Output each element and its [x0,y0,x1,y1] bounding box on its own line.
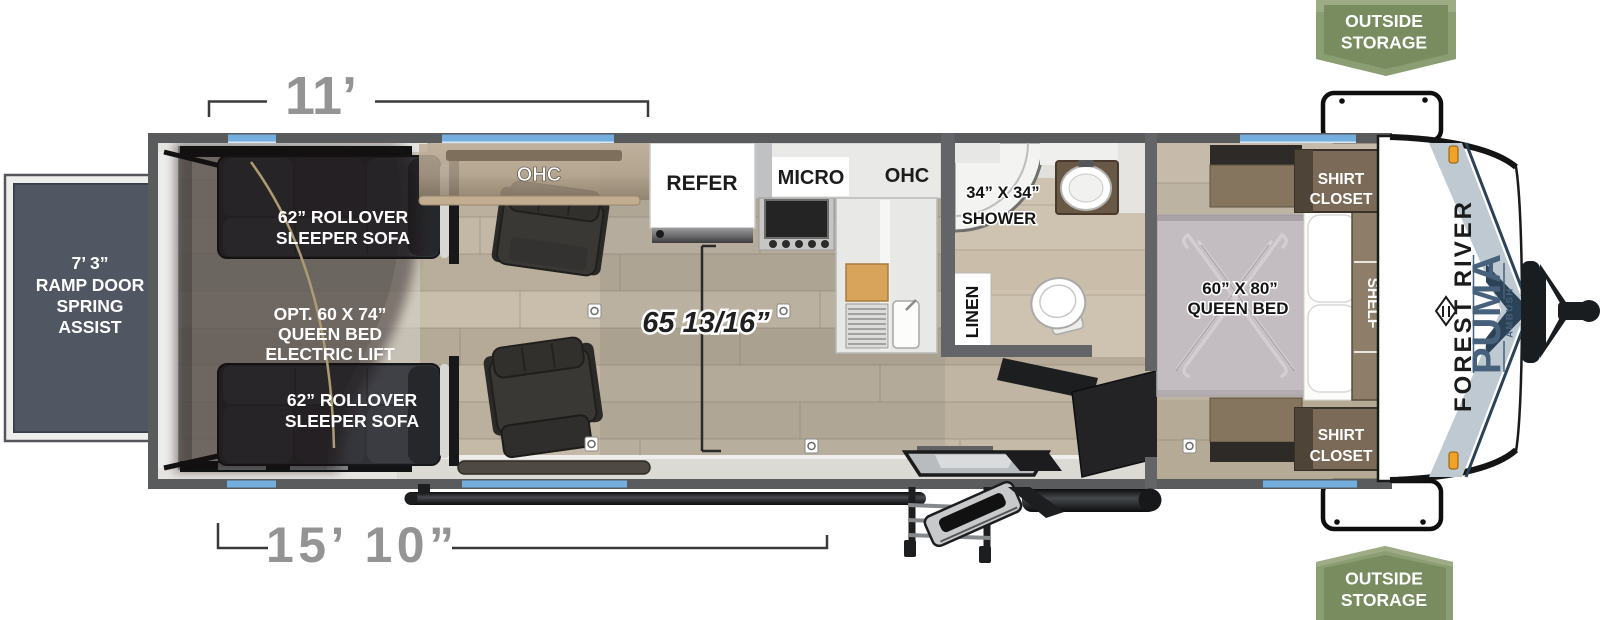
svg-text:34” X 34”: 34” X 34” [966,184,1039,202]
svg-text:PUMA: PUMA [1465,252,1509,374]
svg-text:STORAGE: STORAGE [1341,590,1427,610]
svg-text:QUEEN BED: QUEEN BED [278,324,382,344]
svg-text:RAMP DOOR: RAMP DOOR [36,275,145,295]
svg-text:MICRO: MICRO [778,167,845,189]
svg-text:SHIRT: SHIRT [1318,427,1365,444]
svg-text:LINEN: LINEN [962,286,982,339]
svg-text:60” X 80”: 60” X 80” [1202,279,1278,298]
svg-text:SPRING: SPRING [56,296,123,316]
svg-text:ELECTRIC LIFT: ELECTRIC LIFT [265,344,395,364]
svg-text:OHC: OHC [885,165,929,187]
svg-text:CLOSET: CLOSET [1310,191,1373,208]
svg-text:11’: 11’ [285,66,357,126]
svg-text:7’ 3”: 7’ 3” [72,253,109,273]
svg-text:OHC: OHC [517,164,561,186]
svg-text:OUTSIDE: OUTSIDE [1345,11,1423,31]
svg-text:SHOWER: SHOWER [962,210,1036,228]
svg-text:OUTSIDE: OUTSIDE [1345,569,1423,589]
svg-text:AMBUSH: AMBUSH [1505,287,1516,338]
svg-text:SHIRT: SHIRT [1318,171,1365,188]
svg-text:ASSIST: ASSIST [58,317,122,337]
svg-text:SLEEPER SOFA: SLEEPER SOFA [276,228,411,248]
svg-text:65 13/16”: 65 13/16” [642,307,770,339]
svg-text:QUEEN BED: QUEEN BED [1187,299,1288,318]
svg-text:STORAGE: STORAGE [1341,33,1427,53]
svg-text:CLOSET: CLOSET [1310,448,1373,465]
svg-text:OPT. 60 X 74”: OPT. 60 X 74” [274,304,387,324]
svg-text:62” ROLLOVER: 62” ROLLOVER [278,207,409,227]
svg-text:62” ROLLOVER: 62” ROLLOVER [287,390,418,410]
svg-text:SLEEPER SOFA: SLEEPER SOFA [285,411,420,431]
svg-text:REFER: REFER [666,172,737,195]
